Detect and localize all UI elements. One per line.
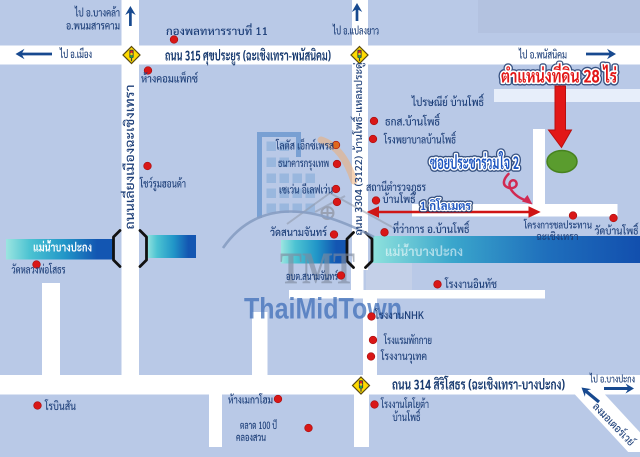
svg-text:TMT: TMT — [280, 244, 355, 294]
